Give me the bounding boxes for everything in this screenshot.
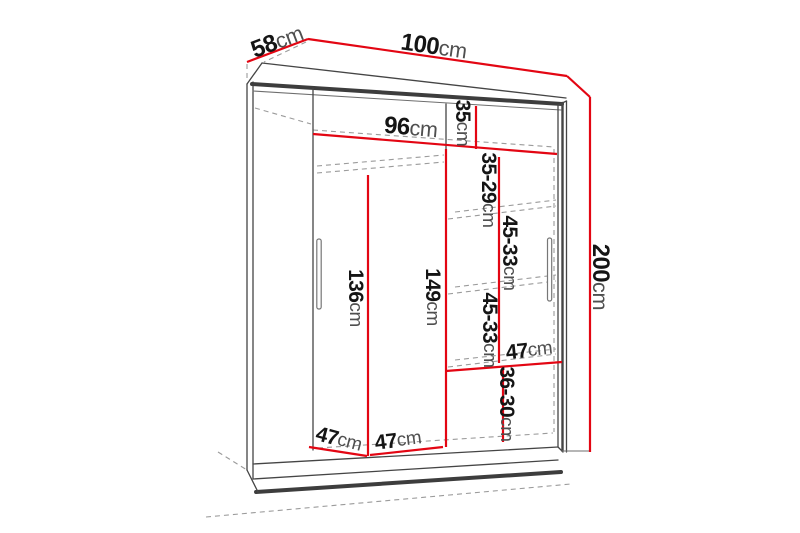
- height-label: 200cm: [588, 244, 615, 310]
- left-wall-inner-top-edge: [255, 108, 311, 124]
- right-interior-height-label: 149cm: [422, 268, 445, 326]
- floor-guide-line: [218, 452, 247, 470]
- interior-width-label: 96cm: [383, 111, 439, 143]
- floor-guide-line: [206, 484, 571, 517]
- width-height-connector-line: [567, 76, 590, 97]
- left-door-handle: [317, 239, 321, 309]
- product-dimension-image: 58cm 100cm 96cm 35cm 35-29cm 45-33cm 45-…: [0, 0, 800, 533]
- middle-shelf-gap-2-label: 45-33cm: [479, 292, 502, 367]
- dimension-labels: 58cm 100cm 96cm 35cm 35-29cm 45-33cm 45-…: [247, 19, 614, 456]
- shelf-edge: [455, 200, 556, 212]
- top-compartment-label: 35cm: [452, 100, 475, 147]
- upper-shelf-gap-label: 35-29cm: [478, 152, 501, 227]
- wardrobe-diagram: 58cm 100cm 96cm 35cm 35-29cm 45-33cm 45-…: [0, 0, 800, 533]
- middle-shelf-gap-1-label: 45-33cm: [499, 215, 522, 290]
- hanging-rail: [317, 155, 444, 166]
- left-interior-height-label: 136cm: [345, 269, 368, 327]
- bottom-shelf-gap-label: 36-30cm: [496, 366, 519, 441]
- hanging-rail: [317, 162, 444, 173]
- width-label: 100cm: [399, 28, 469, 64]
- right-door-handle: [548, 238, 552, 301]
- depth-label: 58cm: [247, 19, 307, 63]
- shelf-width-label: 47cm: [505, 336, 554, 364]
- top-left-corner-edge: [247, 63, 262, 84]
